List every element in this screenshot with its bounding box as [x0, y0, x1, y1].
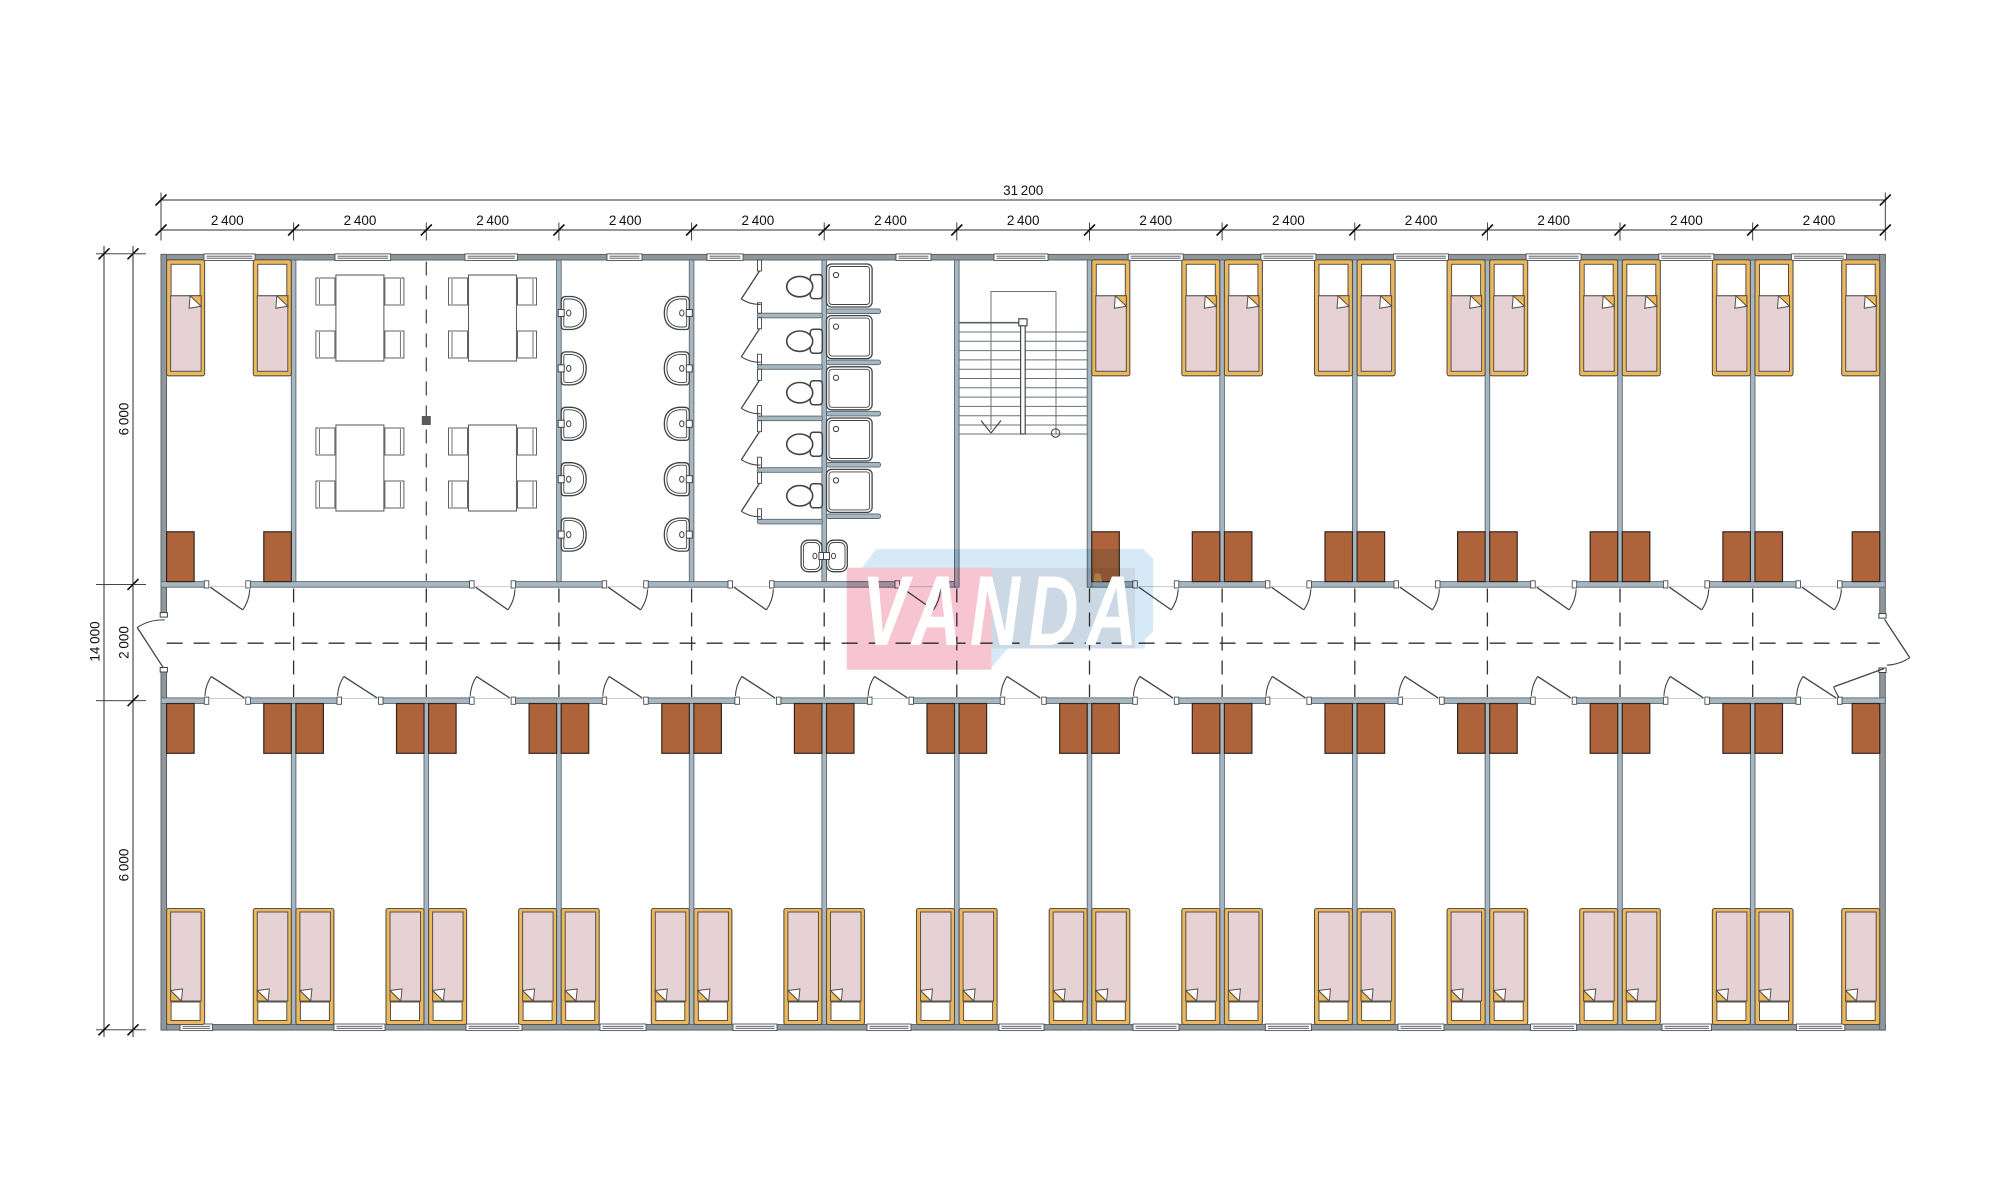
svg-text:2 400: 2 400	[344, 213, 377, 228]
svg-text:2 400: 2 400	[1803, 213, 1836, 228]
svg-text:2 400: 2 400	[609, 213, 642, 228]
svg-text:2 400: 2 400	[742, 213, 775, 228]
svg-text:31 200: 31 200	[1003, 183, 1043, 198]
svg-text:2 400: 2 400	[1405, 213, 1438, 228]
svg-text:2 400: 2 400	[1537, 213, 1570, 228]
svg-text:2 000: 2 000	[117, 626, 132, 659]
svg-text:2 400: 2 400	[1670, 213, 1703, 228]
svg-text:2 400: 2 400	[1139, 213, 1172, 228]
svg-text:2 400: 2 400	[1272, 213, 1305, 228]
svg-text:2 400: 2 400	[476, 213, 509, 228]
svg-text:VANDA: VANDA	[862, 557, 1145, 667]
svg-text:2 400: 2 400	[211, 213, 244, 228]
svg-text:2 400: 2 400	[1007, 213, 1040, 228]
svg-text:2 400: 2 400	[874, 213, 907, 228]
svg-text:6 000: 6 000	[117, 403, 132, 436]
svg-text:14 000: 14 000	[88, 621, 103, 661]
svg-text:6 000: 6 000	[117, 849, 132, 882]
